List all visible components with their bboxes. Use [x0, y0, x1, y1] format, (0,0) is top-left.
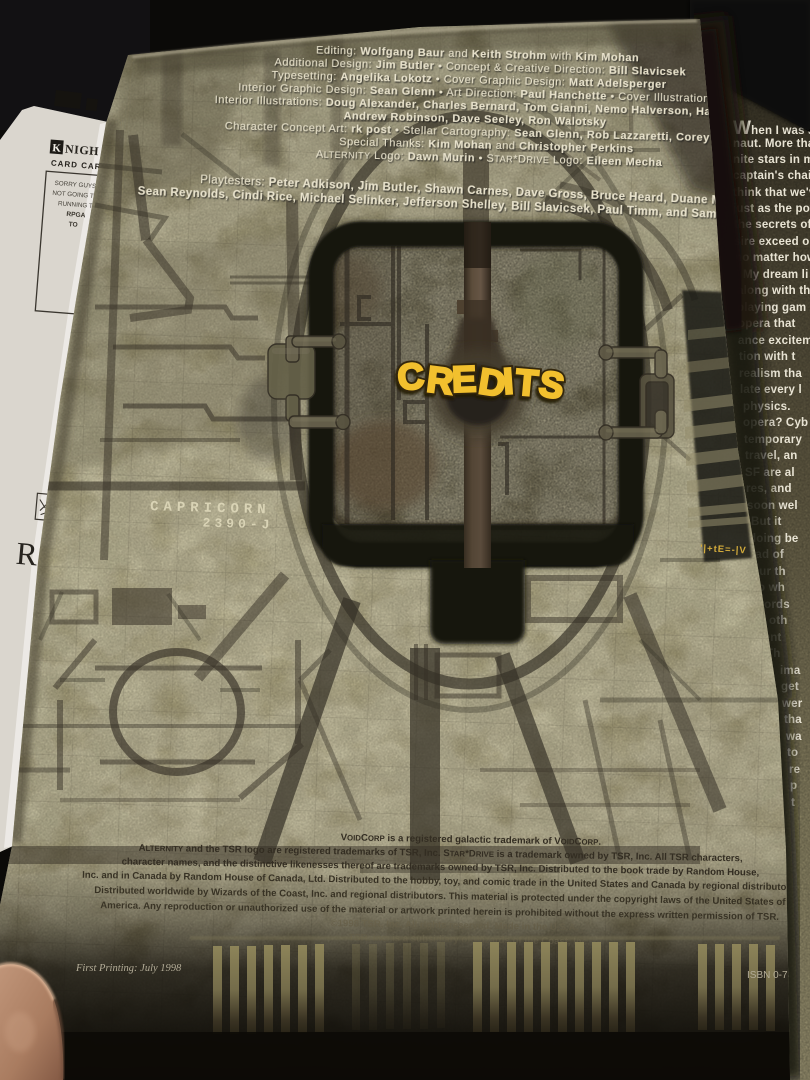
svg-text:NIGH: NIGH: [65, 142, 100, 159]
svg-text:2390-J: 2390-J: [202, 516, 273, 533]
svg-text:First Printing: July 1998: First Printing: July 1998: [75, 963, 182, 974]
svg-text:K: K: [52, 142, 62, 155]
svg-text:R: R: [15, 535, 40, 573]
svg-text:TO: TO: [68, 221, 78, 229]
